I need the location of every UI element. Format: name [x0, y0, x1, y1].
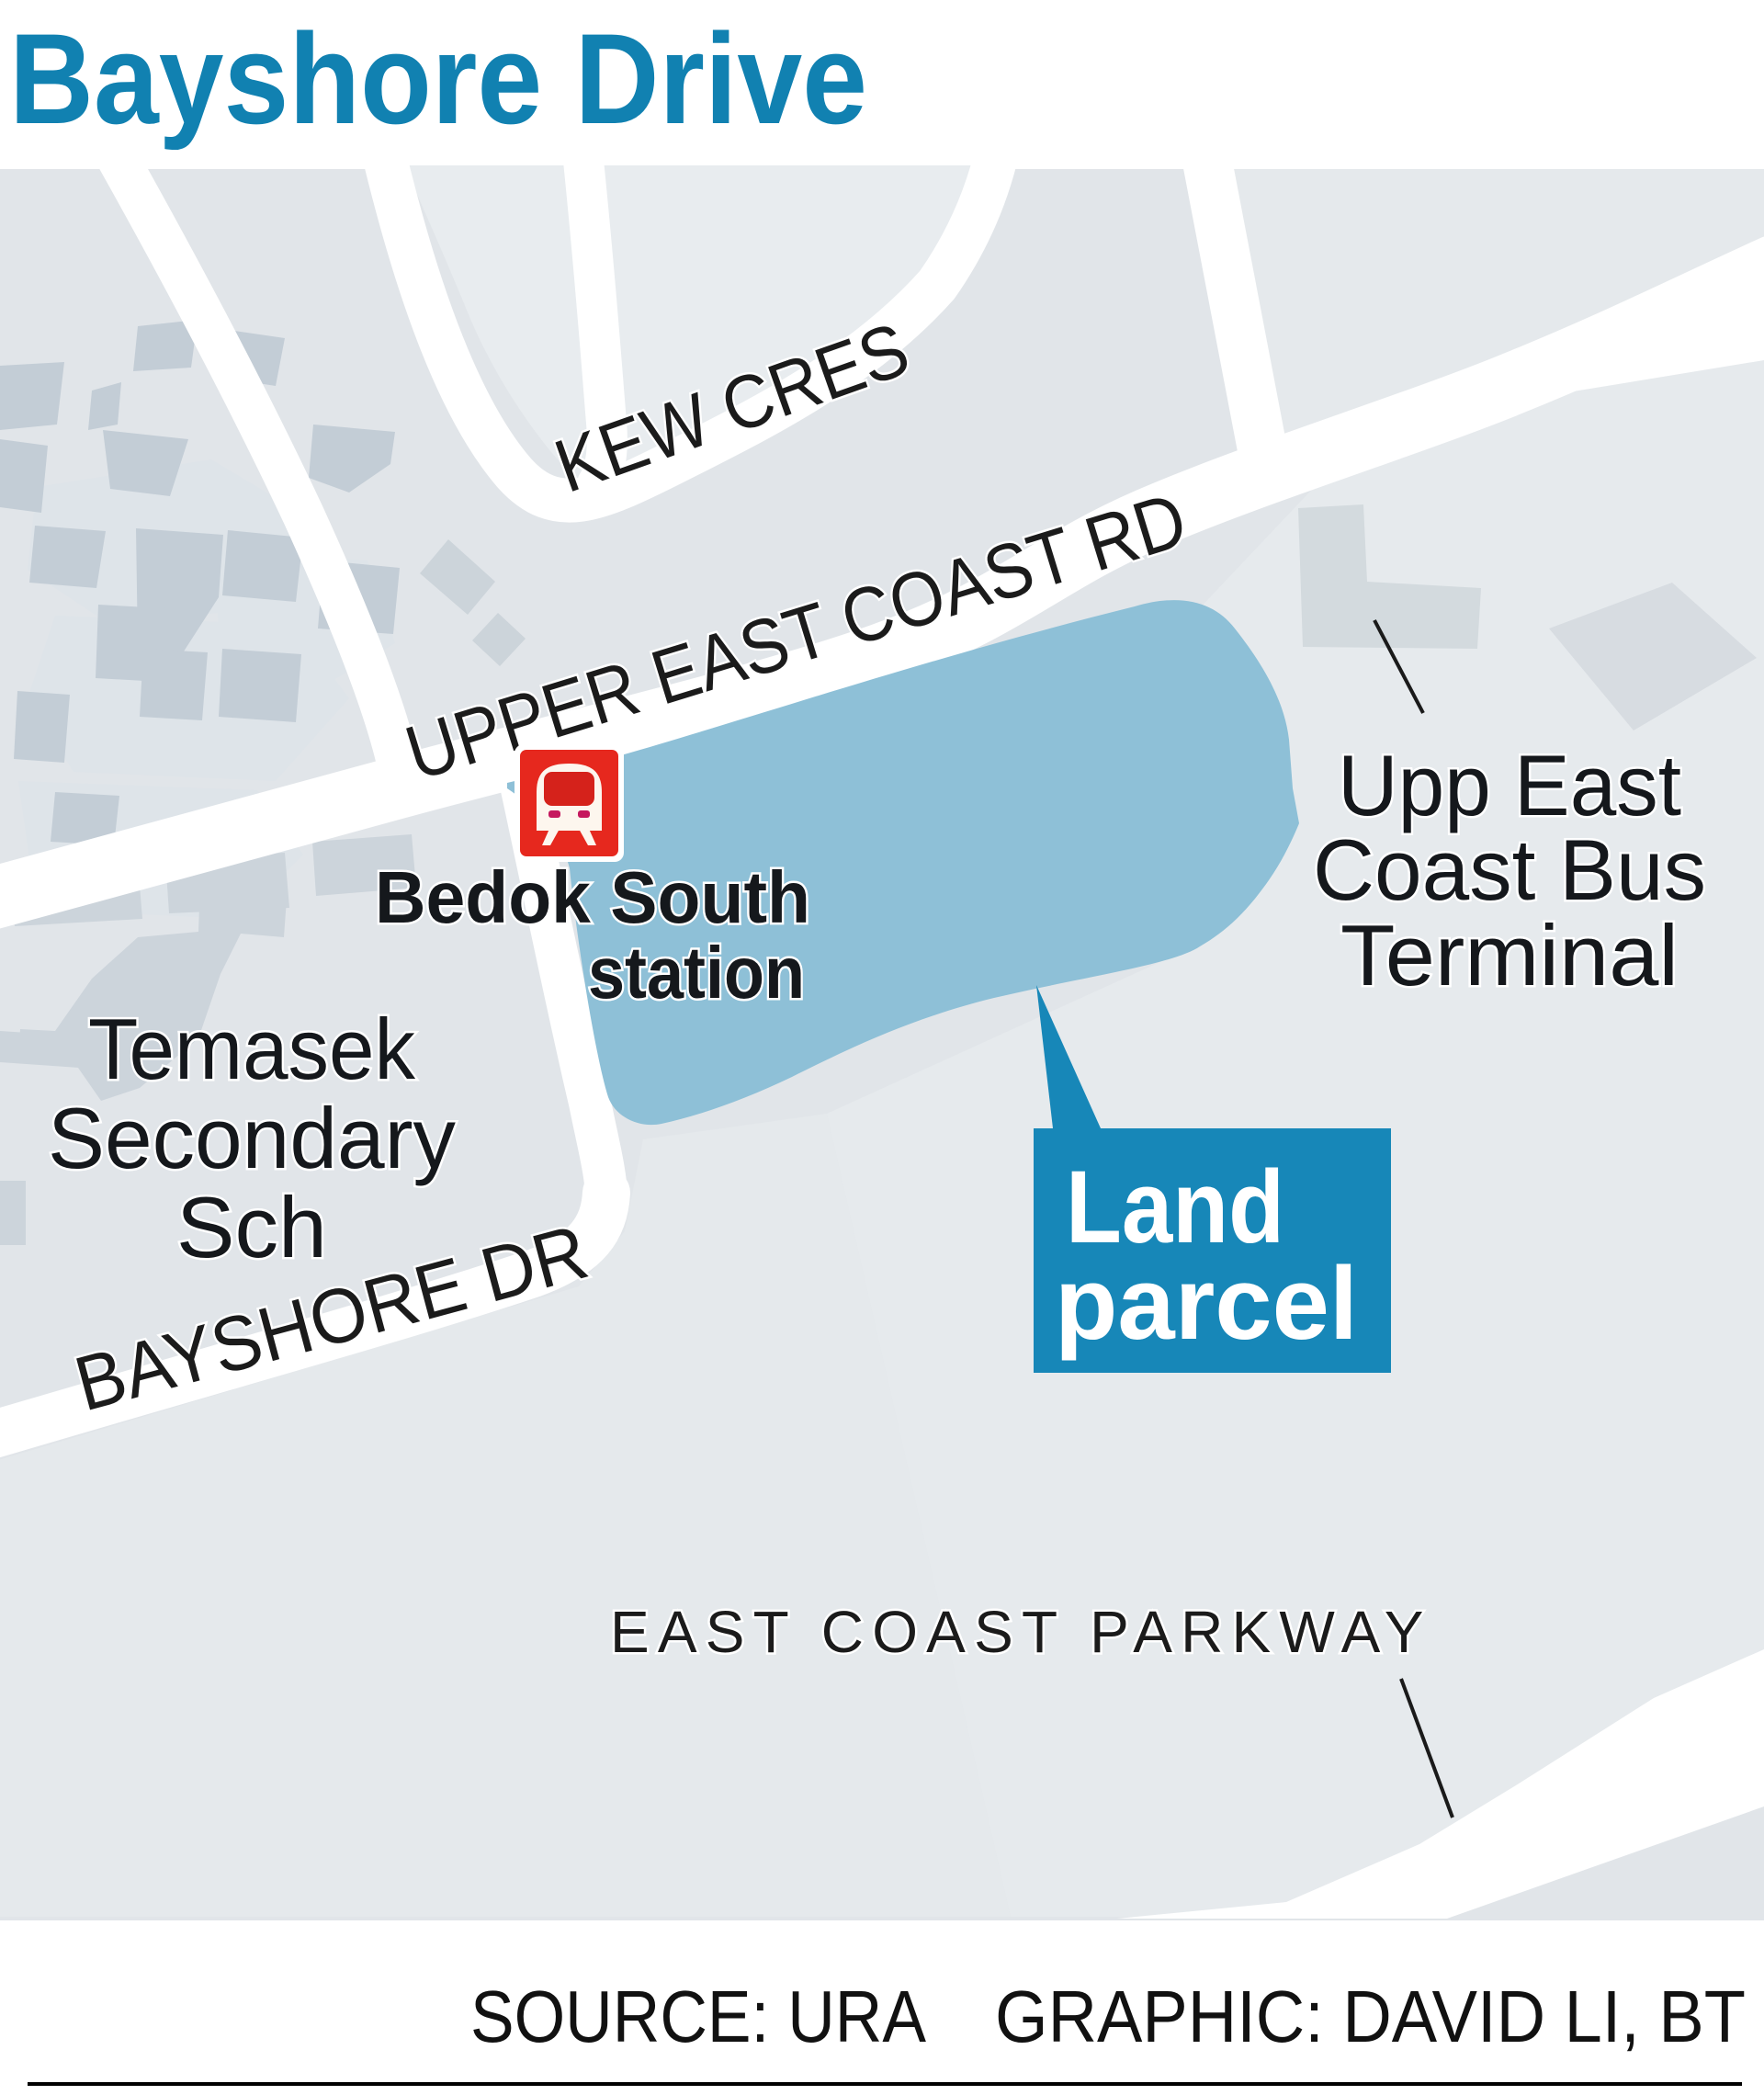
svg-text:Terminal: Terminal	[1340, 907, 1679, 1003]
svg-text:parcel: parcel	[1055, 1246, 1358, 1361]
svg-text:Sch: Sch	[176, 1179, 327, 1275]
svg-text:Bayshore Drive: Bayshore Drive	[9, 6, 867, 151]
svg-text:EAST COAST PARKWAY: EAST COAST PARKWAY	[610, 1599, 1432, 1665]
svg-text:station: station	[588, 932, 805, 1014]
svg-text:Coast Bus: Coast Bus	[1313, 821, 1706, 918]
svg-text:Upp East: Upp East	[1338, 737, 1681, 833]
svg-text:Temasek: Temasek	[88, 1001, 416, 1097]
svg-text:SOURCE: URA: SOURCE: URA	[470, 1976, 927, 2057]
svg-text:Secondary: Secondary	[48, 1090, 456, 1186]
svg-text:Bedok South: Bedok South	[375, 856, 810, 938]
svg-text:GRAPHIC: DAVID LI, BT: GRAPHIC: DAVID LI, BT	[995, 1976, 1746, 2057]
